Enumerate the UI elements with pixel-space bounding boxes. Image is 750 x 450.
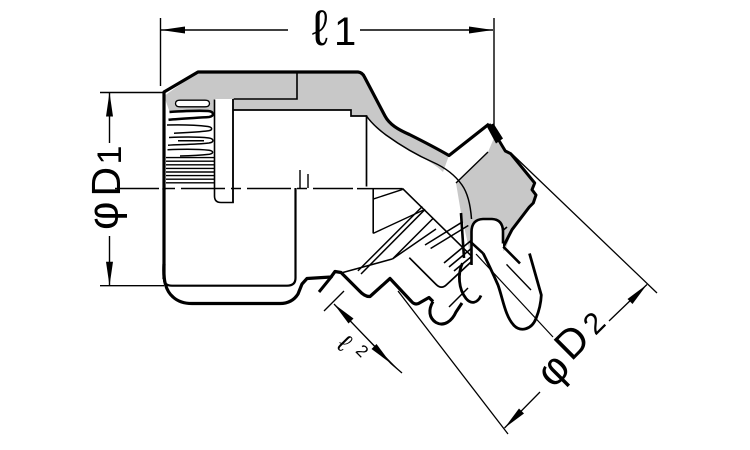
svg-text:1: 1: [334, 10, 356, 54]
svg-text:1: 1: [91, 146, 129, 165]
svg-text:ℓ: ℓ: [312, 0, 328, 56]
svg-text:D: D: [83, 167, 129, 197]
svg-text:2: 2: [352, 341, 372, 361]
svg-text:φ: φ: [79, 201, 128, 230]
